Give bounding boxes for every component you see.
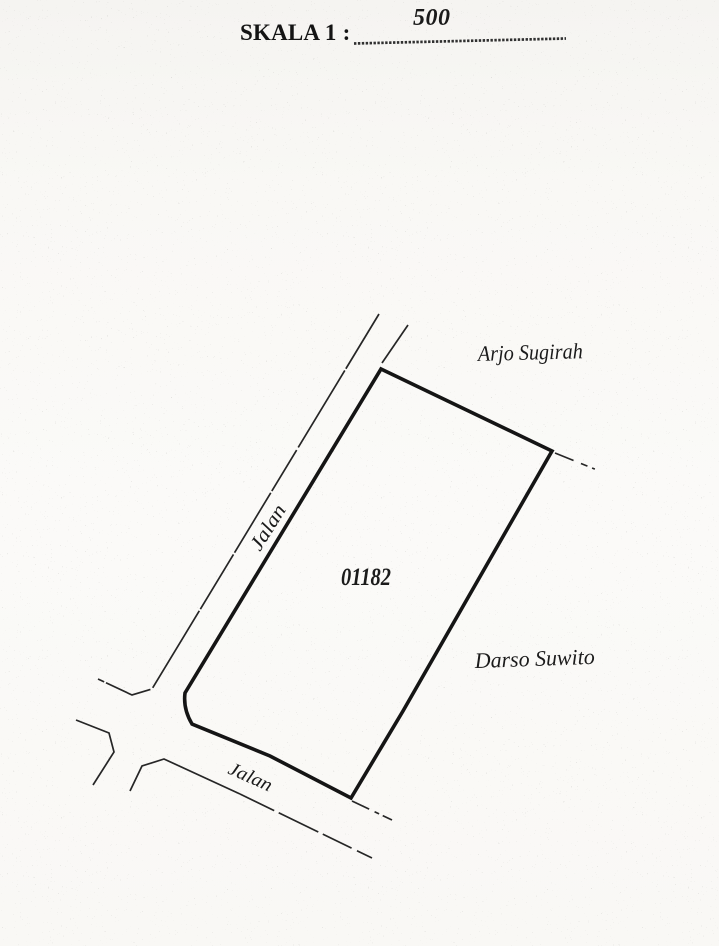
svg-text:500: 500 bbox=[413, 5, 451, 31]
svg-text:Darso Suwito: Darso Suwito bbox=[473, 644, 595, 673]
svg-text:Arjo Sugirah: Arjo Sugirah bbox=[476, 338, 583, 366]
svg-text:SKALA 1 :: SKALA 1 : bbox=[240, 20, 350, 45]
svg-text:01182: 01182 bbox=[341, 564, 391, 591]
